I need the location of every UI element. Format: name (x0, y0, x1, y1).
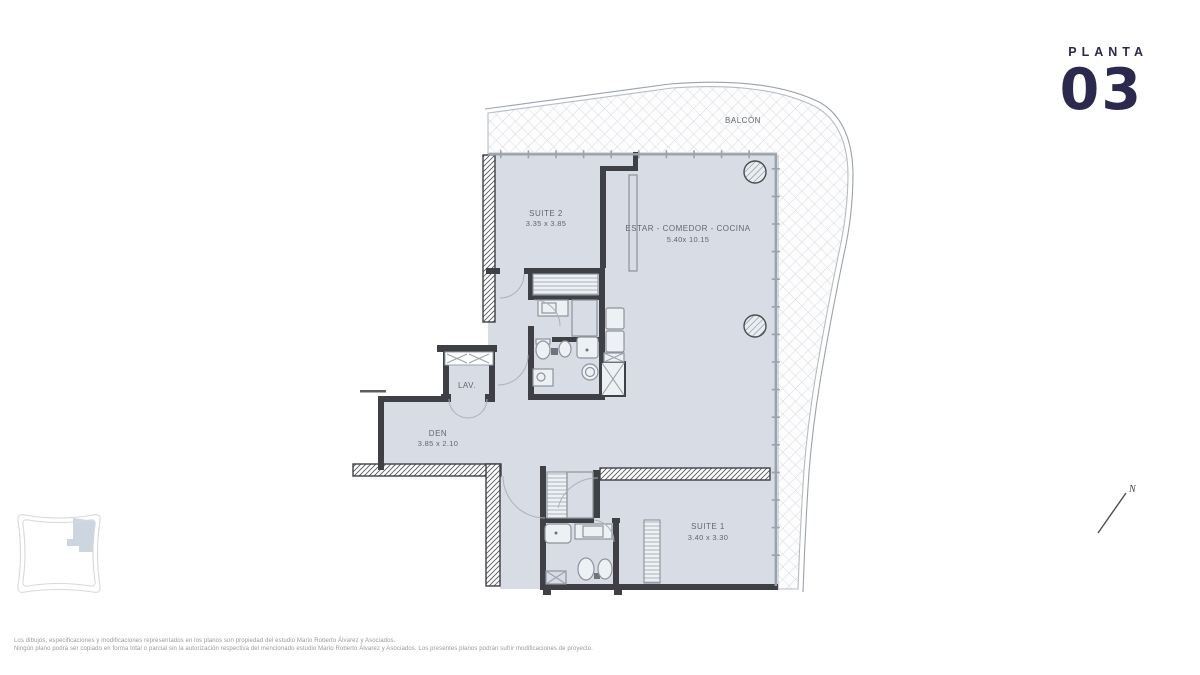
label-suite1-name: SUITE 1 (691, 522, 725, 531)
page: BALCÓN SUITE 2 3.35 x 3.85 ESTAR - COMED… (0, 0, 1200, 675)
key-plan (18, 515, 100, 593)
label-suite2-name: SUITE 2 (529, 209, 563, 218)
shower-x (601, 362, 625, 396)
north-label: N (1128, 484, 1137, 495)
round-sink (582, 364, 598, 380)
key-plan-unit-highlight (67, 518, 95, 552)
label-den-dims: 3.85 x 2.10 (418, 439, 458, 448)
label-living-dims: 5.40x 10.15 (667, 235, 710, 244)
disclaimer-line-2: Ningún plano podrá ser copiado en forma … (14, 645, 593, 653)
disclaimer: Los dibujos, especificaciones y modifica… (14, 637, 593, 653)
closet-suite2 (533, 274, 598, 295)
wall-den-bottom (353, 464, 501, 476)
north-arrow-icon (1098, 493, 1126, 533)
label-suite2-dims: 3.35 x 3.85 (526, 219, 566, 228)
wall-suite2-left (483, 155, 495, 322)
kitchen-appliances (604, 308, 624, 362)
label-living-name: ESTAR - COMEDOR - COCINA (625, 224, 750, 233)
wardrobe-suite1 (644, 520, 660, 583)
label-lav: LAV. (458, 381, 476, 390)
wall-suite1-top (600, 468, 770, 480)
toilet-suite1 (578, 558, 594, 580)
sheet-header: PLANTA 03 (1060, 45, 1143, 119)
sheet-number: 03 (1060, 62, 1143, 119)
bidet (559, 341, 571, 357)
label-balcony: BALCÓN (725, 116, 761, 125)
column (744, 315, 766, 337)
disclaimer-line-1: Los dibujos, especificaciones y modifica… (14, 637, 593, 645)
north-arrow: N (1098, 484, 1137, 533)
label-suite1-dims: 3.40 x 3.30 (688, 533, 728, 542)
tub-suite1 (545, 524, 571, 543)
wall-hall-left (486, 464, 500, 586)
label-den-name: DEN (429, 429, 447, 438)
bidet-suite1 (598, 559, 612, 579)
tub (577, 337, 598, 358)
toilet (536, 341, 550, 359)
floor-plan-canvas: BALCÓN SUITE 2 3.35 x 3.85 ESTAR - COMED… (0, 0, 1200, 675)
column (744, 161, 766, 183)
laundry-counter (445, 352, 493, 365)
wc (533, 369, 553, 386)
